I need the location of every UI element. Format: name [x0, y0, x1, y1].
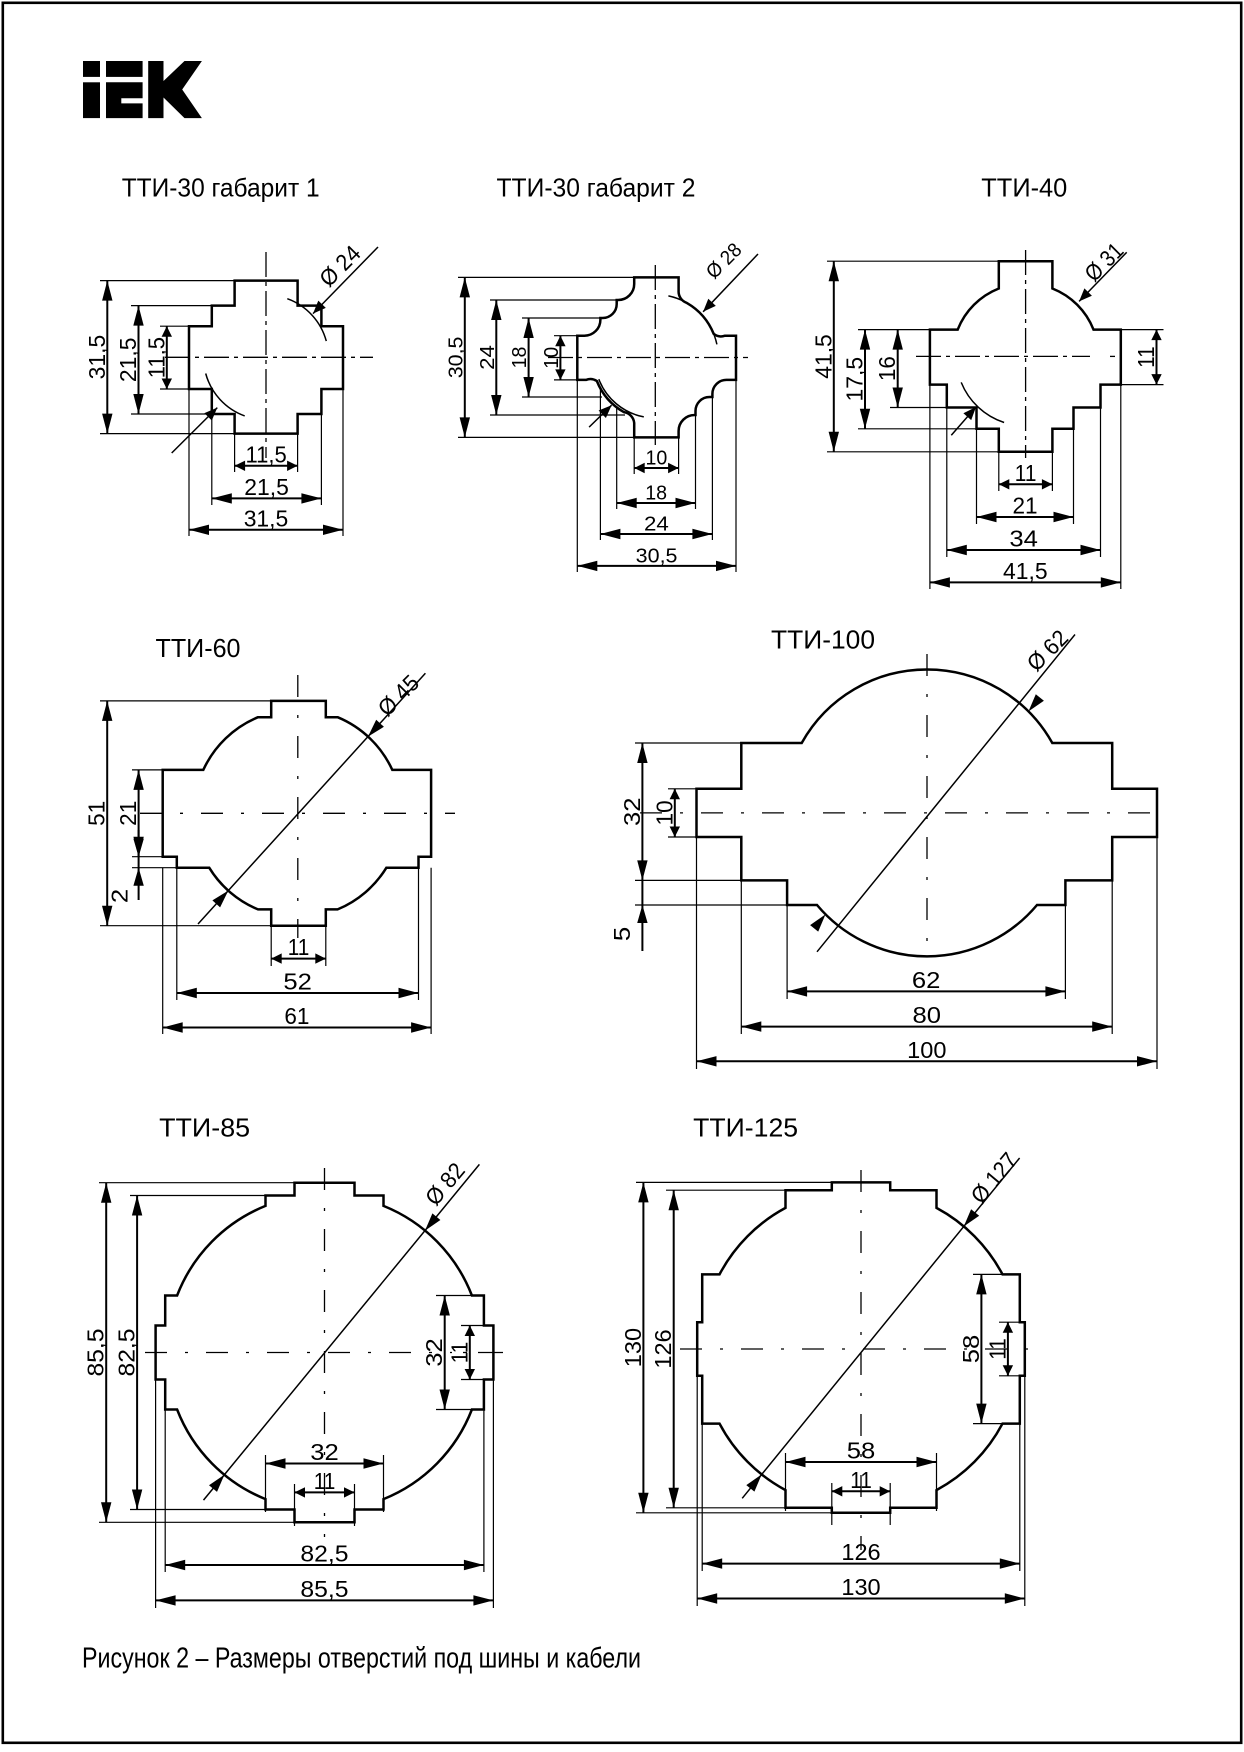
svg-text:11: 11	[1015, 460, 1037, 486]
svg-text:41,5: 41,5	[1003, 558, 1048, 584]
svg-text:41,5: 41,5	[810, 334, 836, 379]
svg-text:85,5: 85,5	[83, 1328, 109, 1376]
svg-text:18: 18	[509, 347, 531, 369]
svg-text:21,5: 21,5	[244, 474, 289, 500]
svg-text:21,5: 21,5	[115, 338, 141, 383]
svg-text:Ø 45: Ø 45	[373, 670, 425, 722]
svg-text:126: 126	[650, 1329, 676, 1368]
svg-text:80: 80	[913, 1002, 942, 1028]
svg-text:ТТИ-85: ТТИ-85	[159, 1113, 250, 1143]
svg-text:32: 32	[310, 1439, 339, 1465]
svg-text:21: 21	[115, 801, 141, 826]
svg-text:11: 11	[288, 934, 310, 960]
svg-text:21: 21	[1012, 493, 1037, 519]
svg-text:85,5: 85,5	[300, 1576, 348, 1602]
svg-text:82,5: 82,5	[114, 1328, 140, 1376]
svg-text:62: 62	[912, 967, 941, 993]
svg-text:31,5: 31,5	[244, 505, 289, 531]
svg-text:11: 11	[446, 1342, 472, 1364]
svg-text:ТТИ-100: ТТИ-100	[771, 625, 875, 655]
svg-text:82,5: 82,5	[300, 1541, 348, 1567]
svg-text:ТТИ-60: ТТИ-60	[156, 633, 241, 663]
svg-text:10: 10	[541, 347, 563, 369]
svg-text:130: 130	[841, 1574, 880, 1600]
svg-text:Ø 62: Ø 62	[1022, 625, 1074, 677]
svg-text:30,5: 30,5	[445, 337, 467, 379]
svg-text:10: 10	[651, 800, 677, 825]
svg-text:10: 10	[646, 448, 668, 470]
svg-text:31,5: 31,5	[84, 335, 110, 380]
svg-text:58: 58	[847, 1438, 876, 1464]
svg-text:11: 11	[850, 1467, 872, 1493]
svg-text:34: 34	[1009, 526, 1038, 552]
svg-text:52: 52	[283, 969, 312, 995]
svg-text:51: 51	[84, 801, 110, 826]
svg-text:58: 58	[958, 1335, 984, 1364]
svg-text:2: 2	[107, 889, 133, 903]
svg-text:30,5: 30,5	[636, 545, 678, 567]
svg-text:ТТИ-125: ТТИ-125	[693, 1113, 798, 1143]
svg-text:11: 11	[314, 1468, 336, 1494]
svg-text:Ø 28: Ø 28	[702, 239, 746, 283]
svg-text:Ø 82: Ø 82	[420, 1158, 470, 1211]
svg-text:18: 18	[645, 483, 667, 505]
svg-text:126: 126	[841, 1539, 880, 1565]
svg-text:16: 16	[874, 356, 900, 381]
svg-text:100: 100	[907, 1037, 946, 1063]
svg-text:24: 24	[477, 345, 499, 370]
svg-text:32: 32	[421, 1338, 447, 1367]
svg-text:ТТИ-40: ТТИ-40	[981, 173, 1067, 203]
svg-text:11: 11	[1133, 346, 1159, 368]
svg-text:ТТИ-30 габарит 2: ТТИ-30 габарит 2	[497, 173, 696, 203]
svg-text:Ø 31: Ø 31	[1079, 237, 1128, 286]
svg-text:ТТИ-30 габарит 1: ТТИ-30 габарит 1	[122, 173, 320, 203]
svg-text:61: 61	[284, 1003, 309, 1029]
svg-text:24: 24	[644, 514, 669, 536]
svg-text:Ø 127: Ø 127	[965, 1147, 1022, 1208]
svg-text:17,5: 17,5	[842, 357, 868, 402]
svg-text:130: 130	[620, 1328, 646, 1367]
svg-text:11,5: 11,5	[143, 337, 169, 378]
svg-text:11: 11	[984, 1338, 1010, 1360]
svg-text:32: 32	[619, 797, 645, 826]
svg-text:5: 5	[609, 927, 635, 941]
svg-text:Ø 24: Ø 24	[314, 240, 366, 292]
svg-text:11,5: 11,5	[246, 441, 287, 467]
svg-text:Рисунок 2 – Размеры отверстий: Рисунок 2 – Размеры отверстий под шины и…	[82, 1643, 641, 1675]
